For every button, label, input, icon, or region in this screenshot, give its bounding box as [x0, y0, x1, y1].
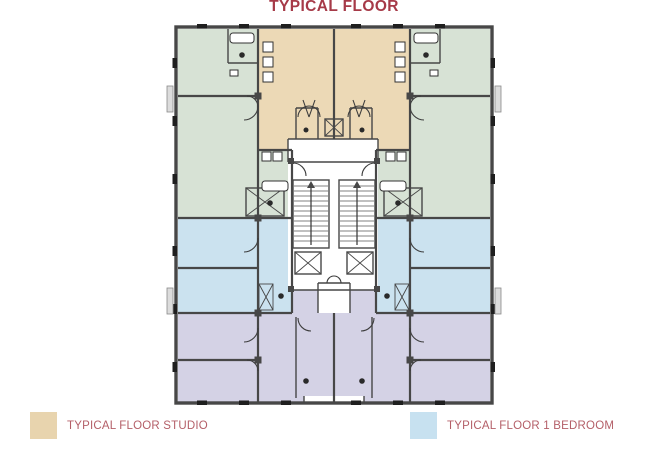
one-bedroom-area-left [178, 218, 258, 313]
one-bedroom-color-swatch [410, 412, 437, 439]
bathtub-icon [230, 33, 254, 43]
toilet-icon [384, 293, 390, 299]
toilet-icon [304, 128, 309, 133]
bathtub-icon [380, 181, 406, 191]
sink-icon [430, 70, 438, 76]
toilet-icon [423, 52, 429, 58]
legend-item-one-bedroom: TYPICAL FLOOR 1 BEDROOM [410, 412, 614, 439]
toilet-icon [267, 200, 273, 206]
top-center-void [288, 139, 378, 162]
kitchen-unit-icon [262, 152, 271, 161]
floor-plan [0, 0, 668, 452]
toilet-icon [359, 378, 365, 384]
kitchen-unit-icon [386, 152, 395, 161]
balcony-ledge [495, 86, 501, 112]
toilet-icon [239, 52, 245, 58]
one-bedroom-area-right [410, 218, 490, 313]
kitchen-unit-icon [273, 152, 282, 161]
floor-plan-page: TYPICAL FLOOR [0, 0, 668, 452]
kitchen-unit-icon [263, 42, 273, 52]
one-bedroom-room-inner-right [376, 218, 410, 313]
toilet-icon [303, 378, 309, 384]
kitchen-unit-icon [395, 57, 405, 67]
balcony-ledge [495, 288, 501, 314]
bottom-center-niche [318, 283, 350, 313]
studio-color-swatch [30, 412, 57, 439]
legend-label-studio: TYPICAL FLOOR STUDIO [67, 420, 208, 432]
kitchen-unit-icon [395, 72, 405, 82]
toilet-icon [360, 128, 365, 133]
toilet-icon [278, 293, 284, 299]
kitchen-unit-icon [397, 152, 406, 161]
kitchen-unit-icon [395, 42, 405, 52]
balcony-ledge [167, 86, 173, 112]
legend-item-studio: TYPICAL FLOOR STUDIO [30, 412, 208, 439]
legend-label-one-bedroom: TYPICAL FLOOR 1 BEDROOM [447, 420, 614, 432]
sink-icon [230, 70, 238, 76]
bathtub-icon [262, 181, 288, 191]
bathtub-icon [414, 33, 438, 43]
toilet-icon [395, 200, 401, 206]
kitchen-unit-icon [263, 72, 273, 82]
balcony-ledge [167, 288, 173, 314]
kitchen-unit-icon [263, 57, 273, 67]
one-bedroom-room-inner-left [258, 218, 292, 313]
